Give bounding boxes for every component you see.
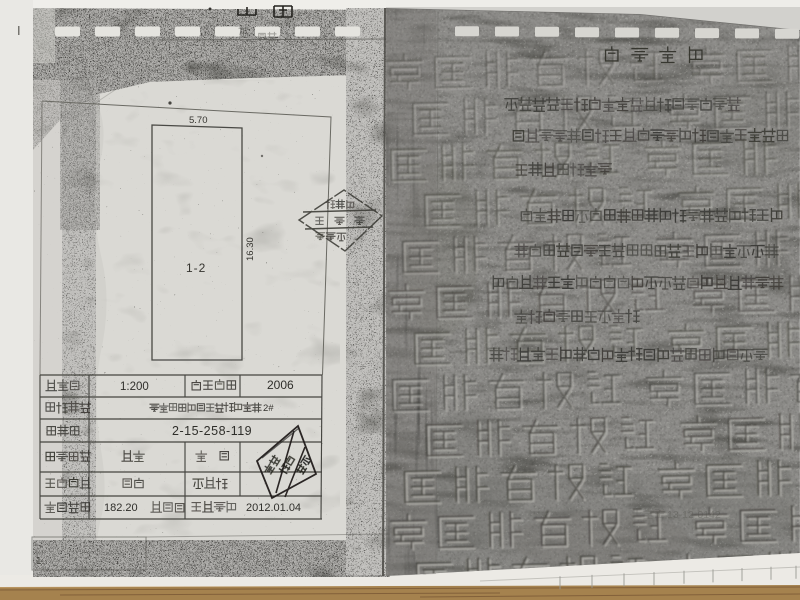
svg-text:5.70: 5.70 (189, 115, 208, 126)
svg-text:1.: 1. (36, 556, 44, 567)
svg-text:1:200: 1:200 (120, 381, 149, 393)
svg-text:2-15-258-119: 2-15-258-119 (172, 424, 252, 438)
svg-text:13-12-0142: 13-12-0142 (667, 509, 721, 521)
svg-text:1-2: 1-2 (186, 261, 206, 275)
svg-text:2006: 2006 (267, 378, 294, 392)
svg-text:16.30: 16.30 (245, 237, 256, 261)
svg-text:2#: 2# (263, 403, 274, 414)
svg-text:182.20: 182.20 (104, 502, 138, 514)
svg-text:2012.01.04: 2012.01.04 (246, 502, 301, 514)
